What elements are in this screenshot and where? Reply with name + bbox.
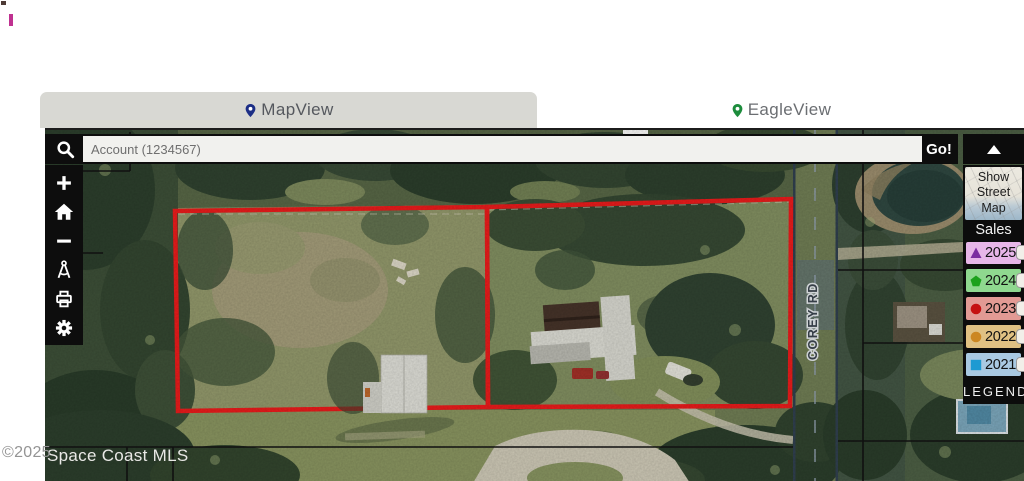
show-street-map-line2: Street (965, 185, 1022, 201)
show-street-map-button[interactable]: Show Street Map (965, 167, 1022, 220)
search-bar: Go! (45, 134, 958, 164)
tab-mapview[interactable]: MapView (40, 92, 537, 128)
map-area[interactable]: COREY RD Go! (45, 128, 1024, 481)
tab-eagleview-label: EagleView (748, 100, 832, 120)
home-button[interactable] (45, 197, 83, 226)
legend-label: LEGEND (963, 381, 1024, 404)
show-street-map-line3: Map (965, 201, 1022, 217)
triangle-marker-icon (970, 247, 982, 259)
year-label: 2023 (985, 301, 1016, 317)
legend-panel: Show Street Map Sales 2025 2024 2023 (963, 165, 1024, 404)
settings-button[interactable] (45, 313, 83, 342)
sales-year-2023[interactable]: 2023 (966, 297, 1021, 320)
minus-icon (53, 230, 75, 252)
sales-title: Sales (963, 220, 1024, 240)
circle-marker-icon (970, 331, 982, 343)
pentagon-marker-icon (970, 275, 982, 287)
aerial-imagery: COREY RD (45, 130, 1024, 481)
year-label: 2022 (985, 329, 1016, 345)
account-search-input[interactable] (83, 136, 922, 162)
square-marker-icon (970, 359, 982, 371)
circle-marker-icon (970, 303, 982, 315)
measure-icon (53, 259, 75, 281)
sales-year-2024[interactable]: 2024 (966, 269, 1021, 292)
print-button[interactable] (45, 284, 83, 313)
year-2022-checkbox[interactable] (1016, 329, 1024, 344)
year-label: 2024 (985, 273, 1016, 289)
collapse-panel-button[interactable] (963, 134, 1024, 164)
sales-year-2025[interactable]: 2025 (966, 242, 1021, 265)
measure-button[interactable] (45, 255, 83, 284)
year-2025-checkbox[interactable] (1016, 245, 1024, 260)
year-label: 2021 (985, 357, 1016, 373)
top-left-artifact (1, 1, 6, 5)
sales-year-2021[interactable]: 2021 (966, 353, 1021, 376)
tab-eagleview[interactable]: EagleView (537, 92, 1024, 128)
mls-watermark: Space Coast MLS (47, 446, 189, 466)
zoom-in-button[interactable] (45, 168, 83, 197)
year-label: 2025 (985, 245, 1016, 261)
year-2021-checkbox[interactable] (1016, 357, 1024, 372)
chevron-up-icon (987, 145, 1001, 154)
home-icon (53, 201, 75, 223)
go-button[interactable]: Go! (922, 136, 956, 162)
year-2023-checkbox[interactable] (1016, 301, 1024, 316)
plus-icon (53, 172, 75, 194)
copyright-year: ©2025 (2, 444, 51, 462)
map-pin-icon (243, 100, 258, 121)
search-icon[interactable] (47, 136, 83, 162)
gear-icon (53, 317, 75, 339)
top-left-pink-mark (9, 14, 13, 26)
map-toolbar (45, 165, 83, 345)
printer-icon (53, 288, 75, 310)
zoom-out-button[interactable] (45, 226, 83, 255)
show-street-map-line1: Show (965, 170, 1022, 186)
sales-year-2022[interactable]: 2022 (966, 325, 1021, 348)
year-2024-checkbox[interactable] (1016, 273, 1024, 288)
eagle-pin-icon (730, 100, 745, 121)
property-map-app: MapView EagleView (0, 0, 1024, 481)
tab-mapview-label: MapView (261, 100, 333, 120)
view-tabs: MapView EagleView (0, 92, 1024, 128)
